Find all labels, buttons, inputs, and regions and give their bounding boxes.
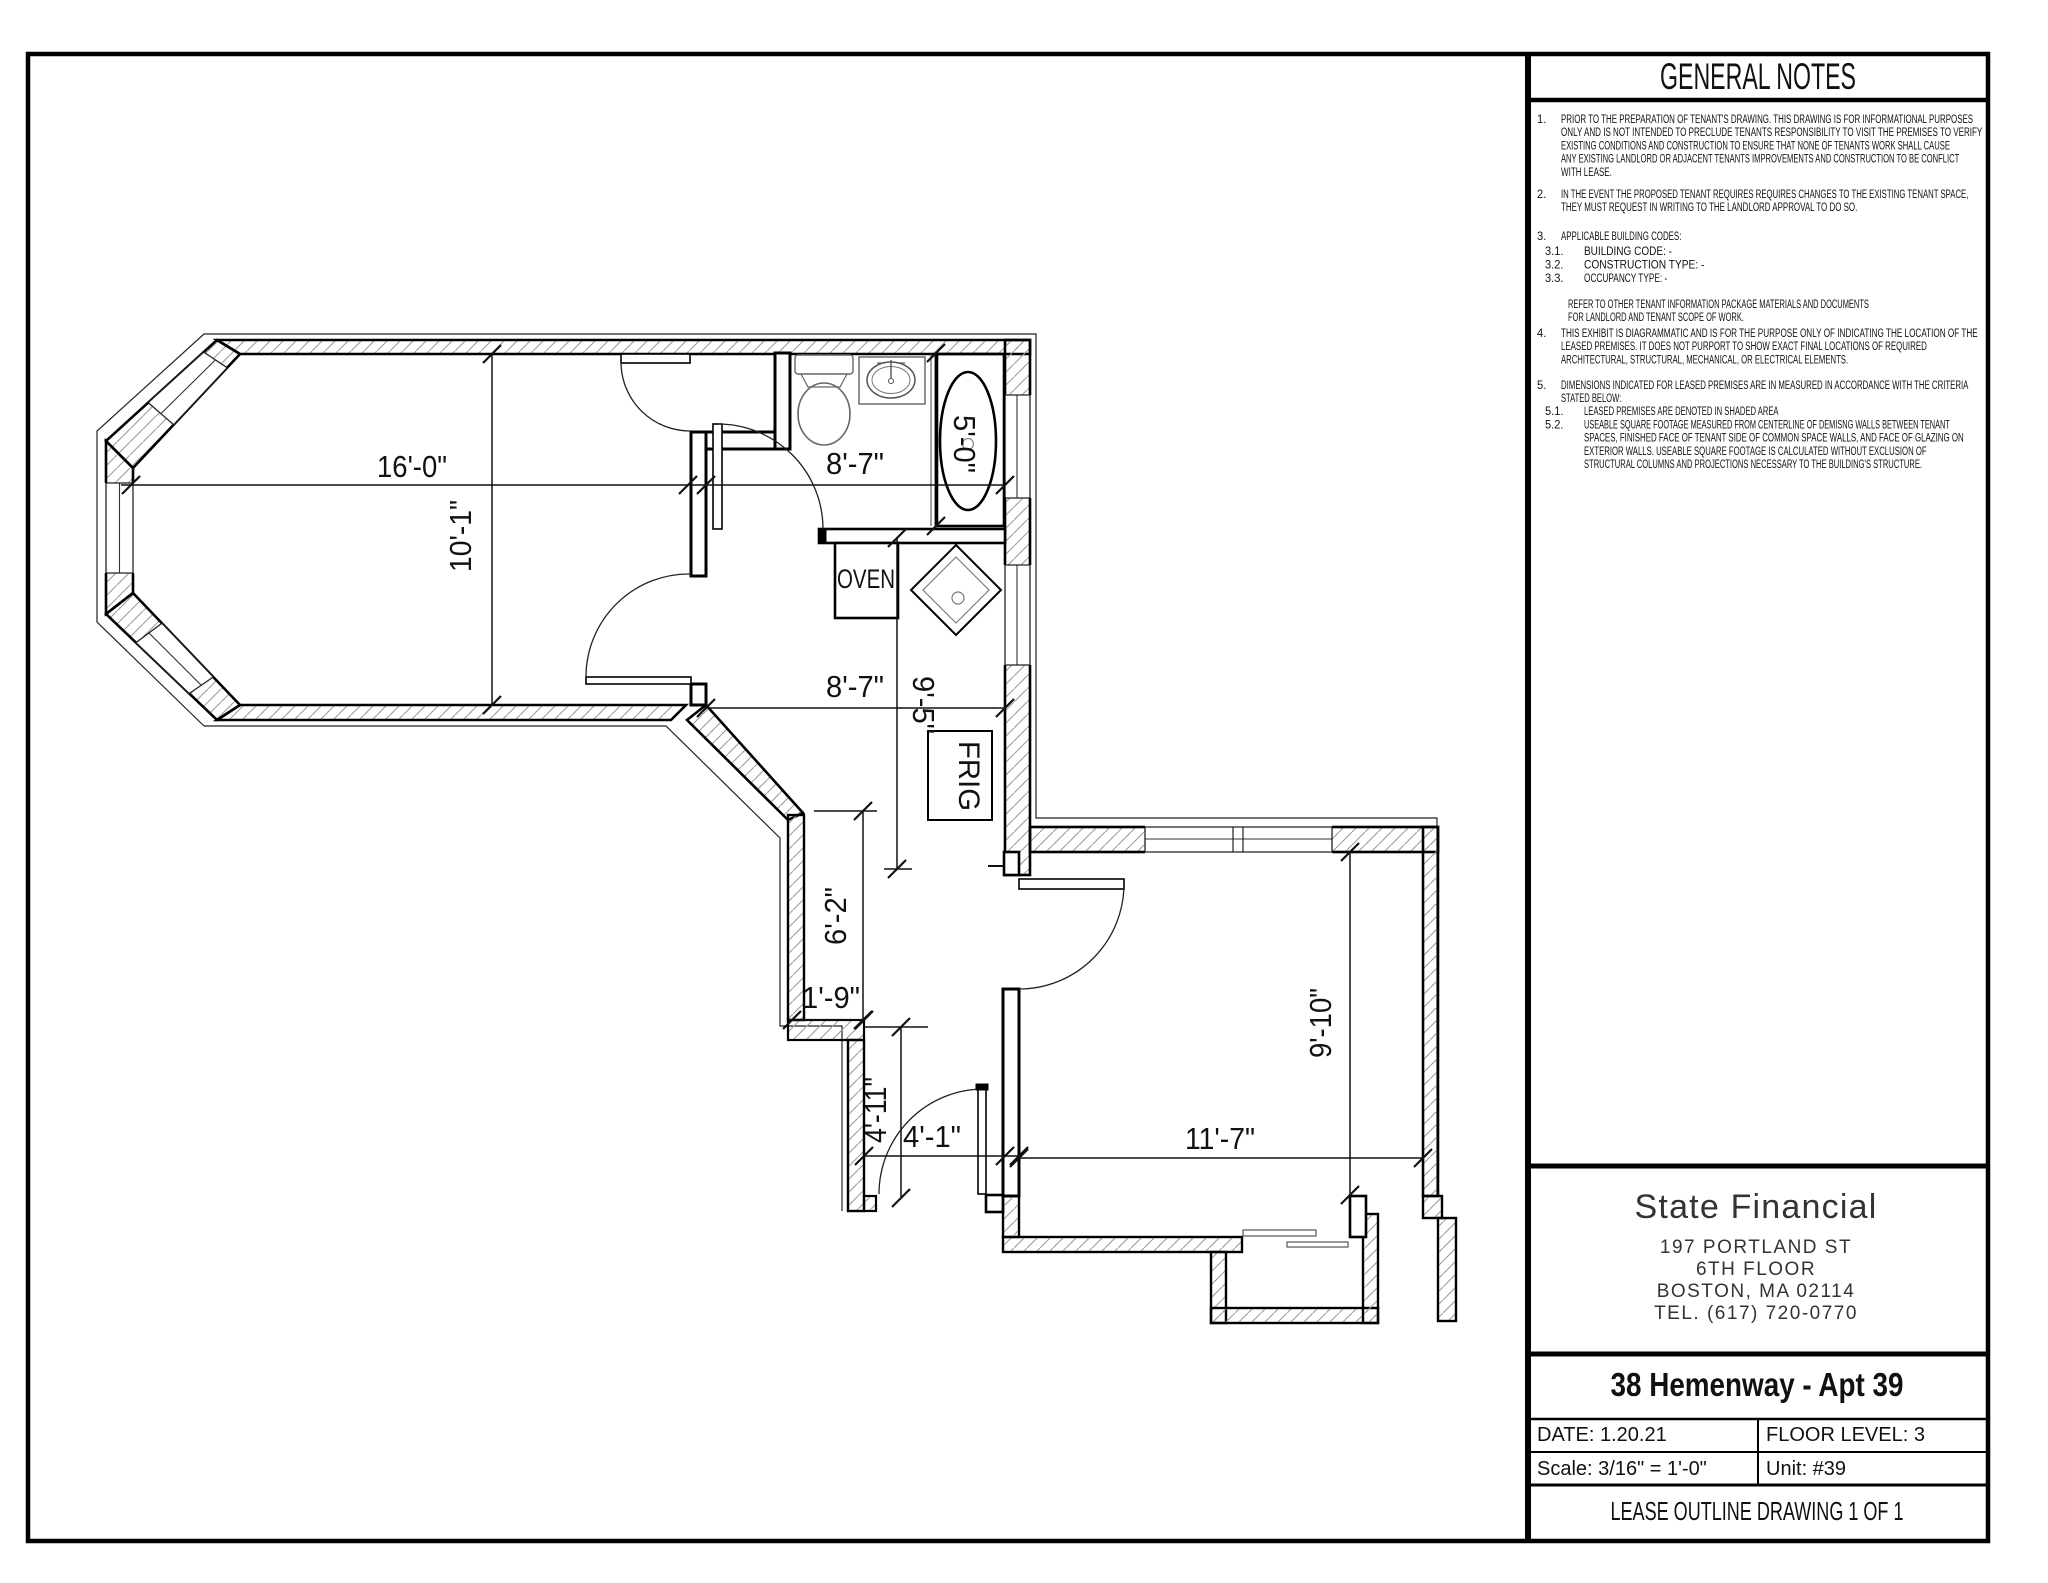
svg-text:SPACES, FINISHED FACE OF TENAN: SPACES, FINISHED FACE OF TENANT SIDE OF …: [1584, 431, 1964, 445]
svg-text:3.3.: 3.3.: [1545, 271, 1564, 285]
svg-text:5.2.: 5.2.: [1545, 418, 1564, 432]
svg-text:ARCHITECTURAL, STRUCTURAL, MEC: ARCHITECTURAL, STRUCTURAL, MECHANICAL, O…: [1561, 352, 1848, 366]
svg-text:FLOOR LEVEL: 3: FLOOR LEVEL: 3: [1766, 1424, 1925, 1446]
svg-text:IN THE EVENT THE PROPOSED TENA: IN THE EVENT THE PROPOSED TENANT REQUIRE…: [1561, 187, 1968, 201]
svg-text:GENERAL NOTES: GENERAL NOTES: [1660, 56, 1856, 97]
svg-text:2.: 2.: [1537, 187, 1546, 201]
svg-text:Unit: #39: Unit: #39: [1766, 1458, 1846, 1480]
svg-text:16'-0": 16'-0": [377, 449, 447, 484]
svg-text:EXISTING CONDITIONS AND CONSTR: EXISTING CONDITIONS AND CONSTRUCTION TO …: [1561, 138, 1950, 152]
svg-text:10'-1": 10'-1": [443, 500, 478, 572]
svg-text:APPLICABLE BUILDING CODES:: APPLICABLE BUILDING CODES:: [1561, 229, 1681, 243]
svg-text:5.1.: 5.1.: [1545, 404, 1564, 418]
svg-text:WITH LEASE.: WITH LEASE.: [1561, 165, 1612, 179]
svg-text:Scale: 3/16" = 1'-0": Scale: 3/16" = 1'-0": [1537, 1458, 1707, 1480]
svg-text:REFER TO OTHER TENANT INFORMAT: REFER TO OTHER TENANT INFORMATION PACKAG…: [1568, 297, 1869, 311]
svg-text:3.2.: 3.2.: [1545, 258, 1564, 272]
svg-text:5.: 5.: [1537, 378, 1546, 392]
svg-text:9'-5": 9'-5": [906, 676, 941, 734]
svg-text:LEASED PREMISES. IT DOES NOT: LEASED PREMISES. IT DOES NOT PURPORT TO …: [1561, 339, 1927, 353]
svg-text:DIMENSIONS INDICATED FOR LEASE: DIMENSIONS INDICATED FOR LEASED PREMISES…: [1561, 378, 1969, 392]
svg-text:FOR LANDLORD AND TENANT SCOPE: FOR LANDLORD AND TENANT SCOPE OF WORK.: [1568, 310, 1744, 324]
svg-text:PRIOR TO THE PREPARATION OF TE: PRIOR TO THE PREPARATION OF TENANT'S DRA…: [1561, 112, 1973, 126]
svg-text:State Financial: State Financial: [1635, 1188, 1878, 1226]
svg-text:BUILDING CODE: -: BUILDING CODE: -: [1584, 244, 1672, 258]
svg-text:EXTERIOR WALLS. USEABLE SQUAR: EXTERIOR WALLS. USEABLE SQUARE FOOTAGE I…: [1584, 444, 1927, 458]
svg-text:ANY EXISTING LANDLORD OR ADJAC: ANY EXISTING LANDLORD OR ADJACENT TENANT…: [1561, 152, 1959, 166]
svg-text:BOSTON, MA 02114: BOSTON, MA 02114: [1657, 1281, 1856, 1302]
svg-text:8'-7": 8'-7": [826, 446, 884, 481]
svg-text:DATE: 1.20.21: DATE: 1.20.21: [1537, 1424, 1667, 1446]
svg-text:TEL. (617) 720-0770: TEL. (617) 720-0770: [1654, 1303, 1858, 1324]
svg-text:4'-1": 4'-1": [903, 1119, 961, 1154]
svg-text:OCCUPANCY TYPE: -: OCCUPANCY TYPE: -: [1584, 271, 1667, 285]
svg-text:1'-9": 1'-9": [802, 980, 860, 1015]
svg-text:LEASE OUTLINE DRAWING 1 OF 1: LEASE OUTLINE DRAWING 1 OF 1: [1611, 1496, 1904, 1526]
svg-text:4.: 4.: [1537, 326, 1546, 340]
svg-text:9'-10": 9'-10": [1303, 988, 1338, 1058]
svg-text:USEABLE SQUARE FOOTAGE MEASURE: USEABLE SQUARE FOOTAGE MEASURED FROM CEN…: [1584, 418, 1950, 432]
svg-text:THIS EXHIBIT IS DIAGRAMMATIC A: THIS EXHIBIT IS DIAGRAMMATIC AND IS FOR …: [1561, 326, 1978, 340]
svg-text:5'-0": 5'-0": [947, 415, 982, 473]
svg-text:8'-7": 8'-7": [826, 669, 884, 704]
svg-text:6'-2": 6'-2": [818, 887, 853, 945]
svg-text:LEASED PREMISES ARE DENOTED IN: LEASED PREMISES ARE DENOTED IN SHADED AR…: [1584, 404, 1779, 418]
svg-text:OVEN: OVEN: [837, 564, 895, 594]
svg-text:197 PORTLAND ST: 197 PORTLAND ST: [1660, 1237, 1852, 1258]
svg-text:CONSTRUCTION TYPE: -: CONSTRUCTION TYPE: -: [1584, 258, 1704, 272]
svg-text:3.1.: 3.1.: [1545, 244, 1564, 258]
svg-text:STRUCTURAL COLUMNS AND PROJECT: STRUCTURAL COLUMNS AND PROJECTIONS NECES…: [1584, 457, 1922, 471]
svg-text:4'-11": 4'-11": [858, 1077, 893, 1143]
svg-text:6TH FLOOR: 6TH FLOOR: [1696, 1259, 1816, 1280]
svg-text:11'-7": 11'-7": [1185, 1121, 1255, 1156]
svg-text:38 Hemenway - Apt 39: 38 Hemenway - Apt 39: [1611, 1366, 1904, 1403]
svg-text:3.: 3.: [1537, 229, 1546, 243]
svg-text:THEY MUST REQUEST IN WRITING: THEY MUST REQUEST IN WRITING TO THE LAND…: [1561, 200, 1857, 214]
svg-text:ONLY AND IS NOT INTENDED TO PR: ONLY AND IS NOT INTENDED TO PRECLUDE TEN…: [1561, 125, 1982, 139]
svg-text:1.: 1.: [1537, 112, 1546, 126]
svg-text:FRIG: FRIG: [952, 741, 985, 811]
